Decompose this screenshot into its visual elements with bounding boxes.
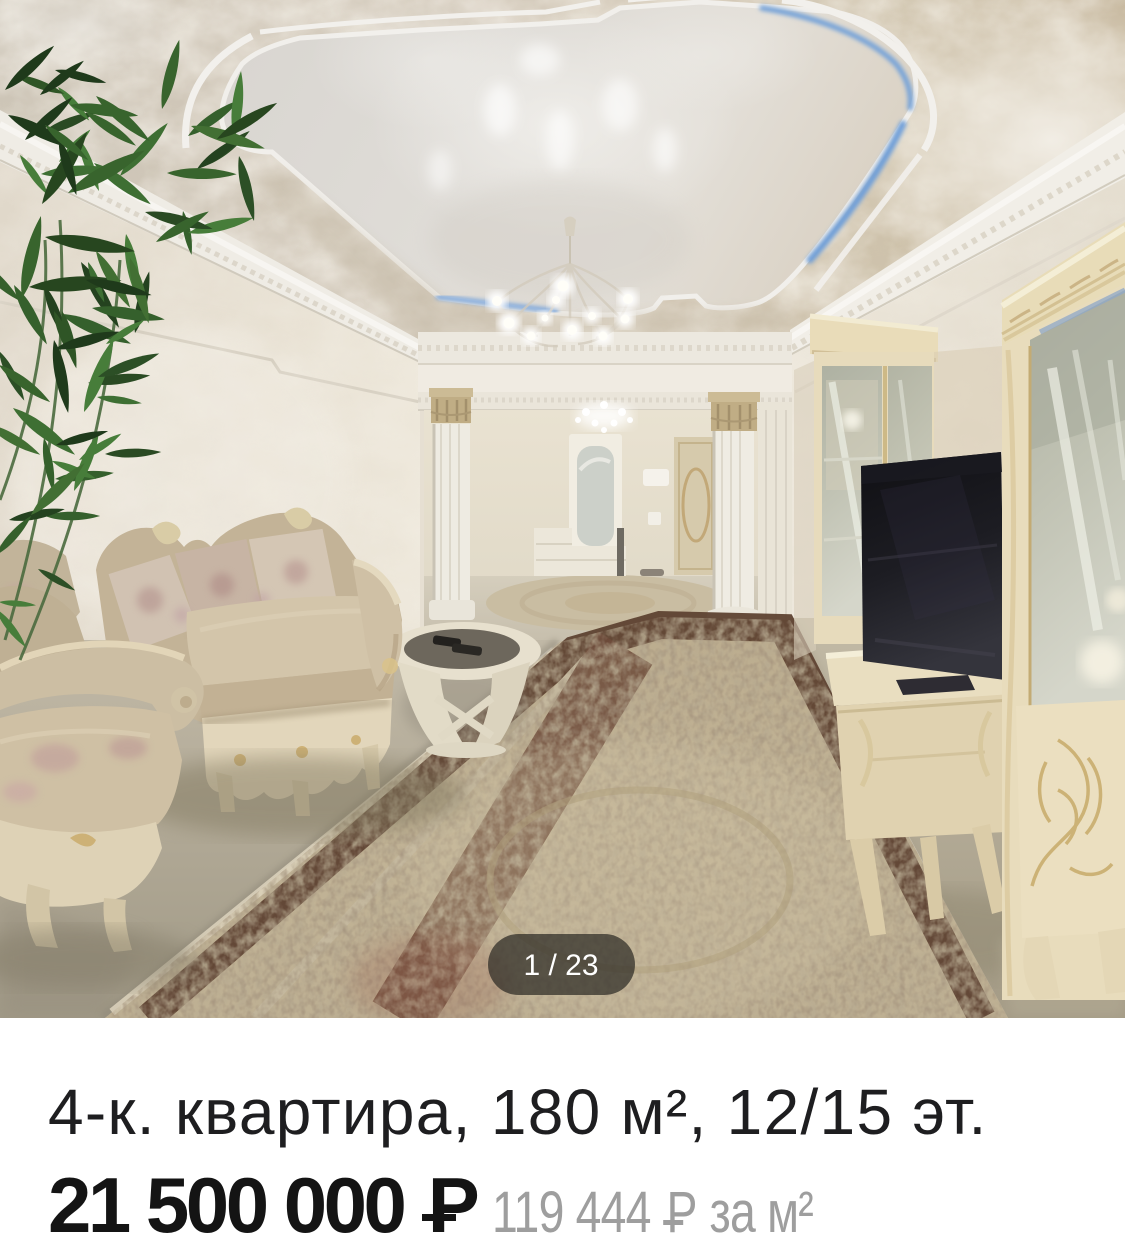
svg-text:1 / 23: 1 / 23 bbox=[523, 949, 598, 982]
